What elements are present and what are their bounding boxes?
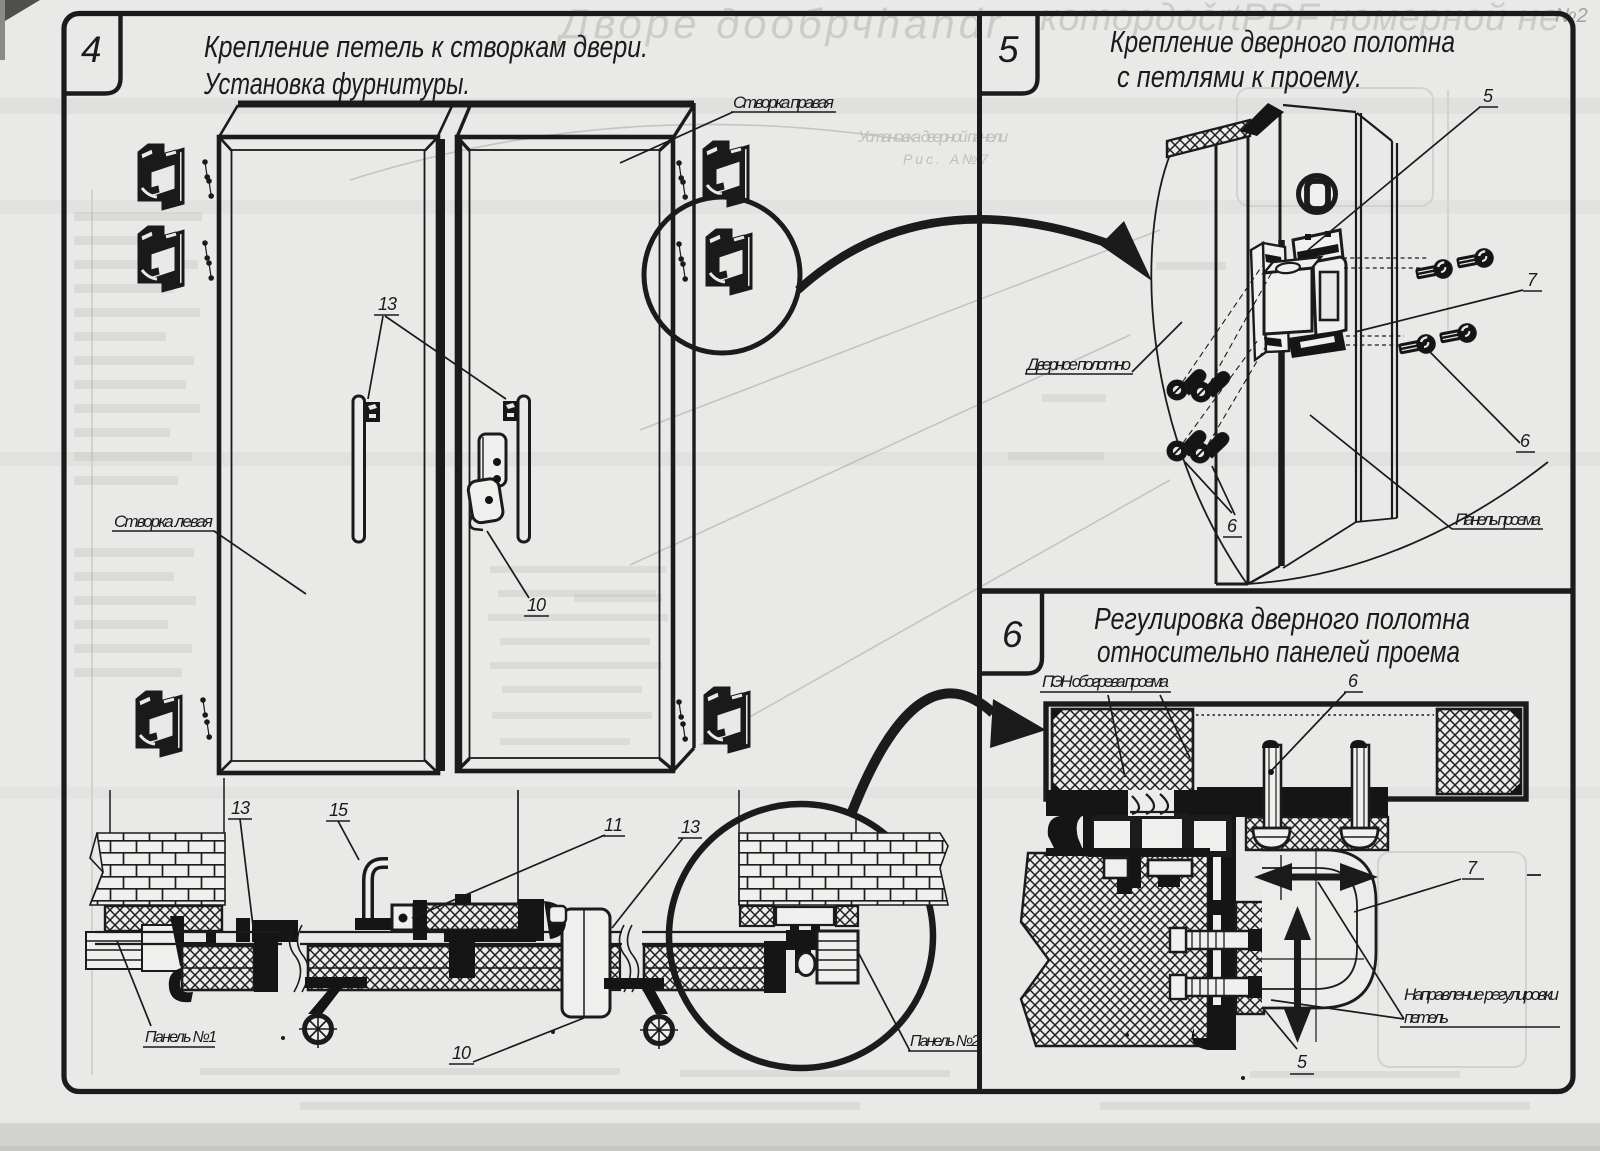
svg-text:15: 15 — [329, 800, 349, 820]
svg-text:ПЭН обогрева проема: ПЭН обогрева проема — [1042, 672, 1169, 691]
svg-text:10: 10 — [452, 1043, 471, 1063]
svg-text:6: 6 — [1227, 516, 1238, 536]
svg-text:Крепление дверного полотна: Крепление дверного полотна — [1110, 24, 1455, 59]
svg-text:5: 5 — [998, 29, 1019, 70]
svg-text:Рис. А№7: Рис. А№7 — [903, 151, 989, 167]
svg-text:13: 13 — [231, 798, 250, 818]
svg-text:7: 7 — [1527, 270, 1538, 290]
svg-text:Панель проема: Панель проема — [1455, 510, 1541, 529]
svg-text:Створка левая: Створка левая — [114, 512, 213, 531]
svg-text:Установка дверной панели: Установка дверной панели — [857, 129, 1008, 146]
svg-text:Панель №1: Панель №1 — [145, 1029, 217, 1046]
svg-text:13: 13 — [681, 817, 700, 837]
svg-text:с петлями к проему.: с петлями к проему. — [1117, 59, 1362, 94]
svg-text:13: 13 — [378, 294, 397, 314]
svg-text:6: 6 — [1348, 671, 1359, 691]
svg-text:6: 6 — [1002, 614, 1023, 655]
svg-text:5: 5 — [1483, 86, 1494, 106]
svg-text:11: 11 — [604, 815, 623, 835]
svg-text:Направление регулировки: Направление регулировки — [1404, 985, 1560, 1004]
svg-text:относительно панелей проема: относительно панелей проема — [1097, 634, 1460, 669]
svg-text:петель: петель — [1404, 1008, 1449, 1027]
svg-text:7: 7 — [1467, 858, 1478, 878]
svg-text:Дверное полотно: Дверное полотно — [1025, 355, 1131, 374]
svg-text:Створка правая: Створка правая — [733, 93, 834, 112]
svg-text:10: 10 — [527, 595, 546, 615]
svg-text:Панель №2: Панель №2 — [910, 1033, 980, 1050]
svg-text:Установка фурнитуры.: Установка фурнитуры. — [203, 66, 470, 101]
svg-text:5: 5 — [1297, 1052, 1308, 1072]
svg-text:Крепление петель к створкам дв: Крепление петель к створкам двери. — [204, 29, 648, 64]
svg-text:6: 6 — [1520, 431, 1531, 451]
svg-text:4: 4 — [81, 29, 102, 70]
svg-text:Регулировка дверного полотна: Регулировка дверного полотна — [1094, 601, 1470, 636]
